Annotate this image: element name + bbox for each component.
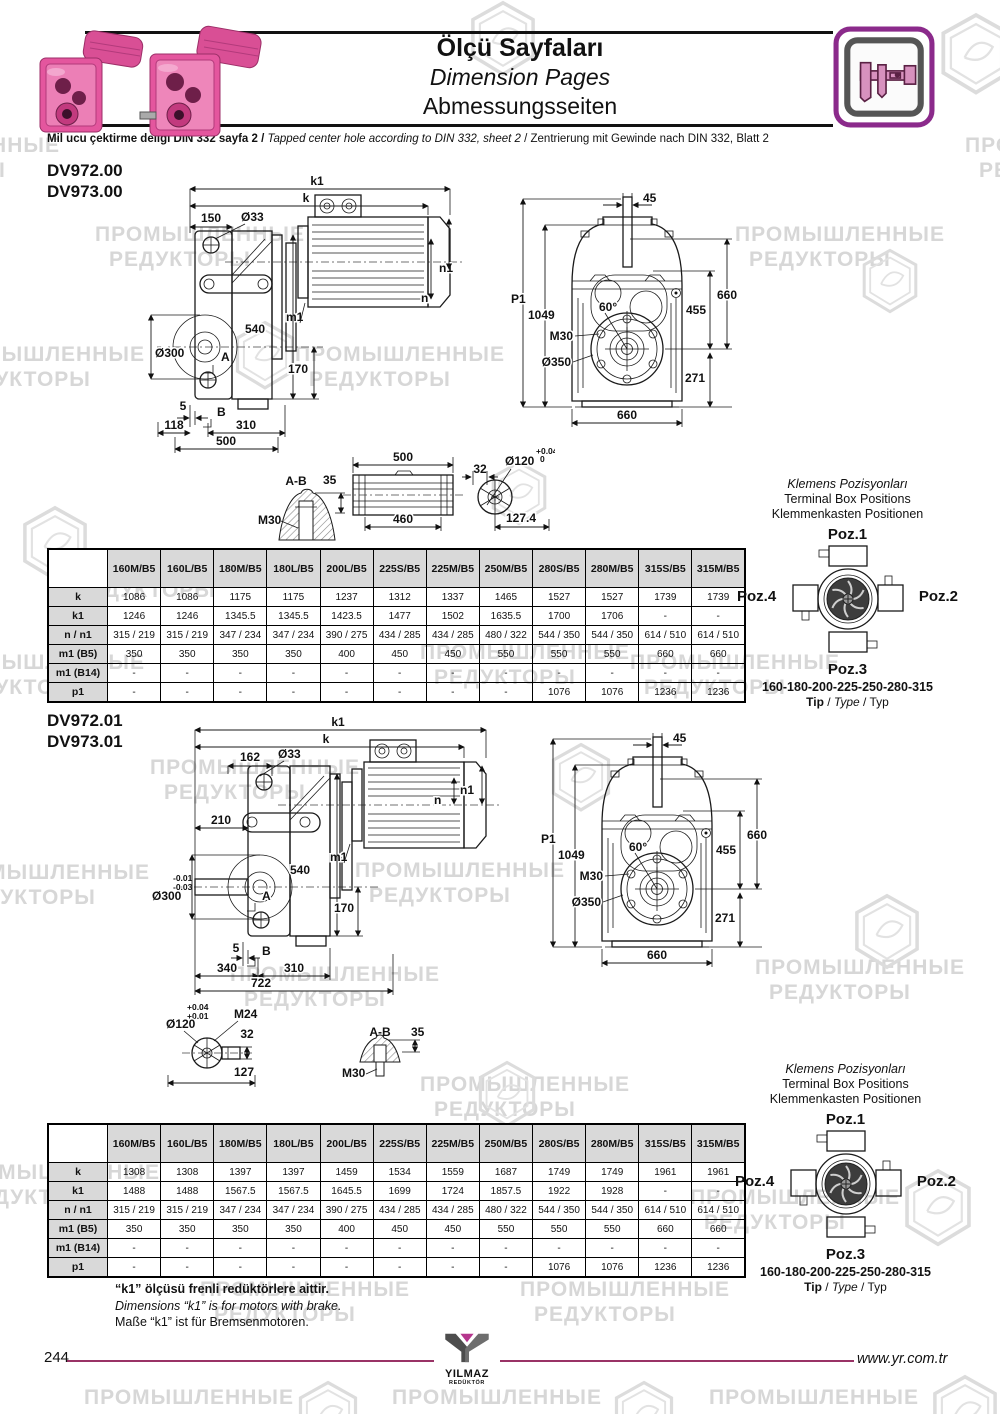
row-label: k1 bbox=[48, 1182, 108, 1201]
table-cell: 1857.5 bbox=[479, 1182, 532, 1201]
table-cell: - bbox=[320, 1239, 373, 1258]
watermark-hexagon bbox=[296, 1380, 360, 1414]
table-cell: 480 / 322 bbox=[479, 626, 532, 645]
dim-label: 170 bbox=[334, 901, 354, 915]
dim-label: k1 bbox=[310, 175, 324, 188]
column-header: 225M/B5 bbox=[426, 1124, 479, 1163]
table-cell: 1236 bbox=[639, 683, 692, 703]
terminal-box-block-1: Klemens Pozisyonları Terminal Box Positi… bbox=[735, 477, 960, 709]
dim-label: 455 bbox=[716, 843, 736, 857]
dim-label: n1 bbox=[439, 261, 453, 275]
table-cell: - bbox=[161, 683, 214, 703]
column-header: 280M/B5 bbox=[586, 549, 639, 588]
dim-label: 150 bbox=[201, 211, 221, 225]
dim-label: Ø350 bbox=[542, 355, 572, 369]
table-cell: - bbox=[479, 683, 532, 703]
column-header: 280S/B5 bbox=[533, 549, 586, 588]
poz3-label: Poz.3 bbox=[733, 1246, 958, 1263]
tip-label: Tip bbox=[806, 695, 824, 709]
table-cell: 350 bbox=[161, 1220, 214, 1239]
table-cell: 660 bbox=[639, 645, 692, 664]
type-label: Type bbox=[832, 1280, 858, 1294]
table-cell: - bbox=[161, 1258, 214, 1278]
table-cell: 1459 bbox=[320, 1163, 373, 1182]
table-cell: - bbox=[479, 664, 532, 683]
table-cell: 1567.5 bbox=[214, 1182, 267, 1201]
dim-label: n bbox=[434, 793, 441, 807]
table-cell: - bbox=[639, 1182, 692, 1201]
row-label: k1 bbox=[48, 607, 108, 626]
table-cell: - bbox=[373, 683, 426, 703]
column-header: 280S/B5 bbox=[533, 1124, 586, 1163]
table-corner-cell bbox=[48, 549, 108, 588]
table-cell: 350 bbox=[214, 645, 267, 664]
column-header: 315S/B5 bbox=[639, 1124, 692, 1163]
dim-label: B bbox=[217, 405, 226, 419]
table-cell: 550 bbox=[479, 1220, 532, 1239]
typ-label: Typ bbox=[868, 1280, 887, 1294]
frame-sizes: 160-180-200-225-250-280-315 bbox=[733, 1265, 958, 1279]
dim-label: 5 bbox=[180, 399, 187, 413]
dim-label: 340 bbox=[217, 961, 237, 975]
dim-label: 660 bbox=[717, 288, 737, 302]
table-cell: 315 / 219 bbox=[108, 1201, 161, 1220]
din-note-de: / Zentrierung mit Gewinde nach DIN 332, … bbox=[524, 133, 769, 145]
model-number: DV972.00 bbox=[47, 160, 123, 181]
dim-label: A bbox=[221, 350, 230, 364]
table-cell: 1397 bbox=[267, 1163, 320, 1182]
table-cell: 315 / 219 bbox=[161, 1201, 214, 1220]
dim-label: A bbox=[262, 889, 271, 903]
yilmaz-logo: YILMAZ REDÜKTÖR bbox=[434, 1330, 500, 1387]
table-cell: 350 bbox=[267, 1220, 320, 1239]
poz-diagram-wrap: Poz.1 Poz.4 Poz.2 Poz.3 bbox=[735, 526, 960, 678]
footnote-en: Dimensions “k1” is for motors with brake… bbox=[115, 1298, 341, 1315]
dim-label: 455 bbox=[686, 303, 706, 317]
footnote-de: Maße “k1” ist für Bremsenmotoren. bbox=[115, 1314, 341, 1331]
dim-label: M30 bbox=[342, 1066, 366, 1080]
table-row: k130813081397139714591534155916871749174… bbox=[48, 1163, 745, 1182]
table-cell: 1076 bbox=[586, 1258, 639, 1278]
table-row: k1124612461345.51345.51423.5147715021635… bbox=[48, 607, 745, 626]
table-cell: 1687 bbox=[479, 1163, 532, 1182]
dim-label: Ø300 bbox=[152, 889, 182, 903]
table-cell: - bbox=[373, 1258, 426, 1278]
table-cell: 1477 bbox=[373, 607, 426, 626]
table-cell: - bbox=[108, 1239, 161, 1258]
column-header: 160L/B5 bbox=[161, 1124, 214, 1163]
table-cell: 1246 bbox=[161, 607, 214, 626]
table-cell: - bbox=[373, 1239, 426, 1258]
table-cell: - bbox=[161, 1239, 214, 1258]
table-cell: 1236 bbox=[639, 1258, 692, 1278]
table-row: m1 (B5)350350350350400450450550550550660… bbox=[48, 1220, 745, 1239]
table-cell: 1922 bbox=[533, 1182, 586, 1201]
table-cell: - bbox=[426, 1239, 479, 1258]
row-label: k bbox=[48, 588, 108, 607]
typ-label: Typ bbox=[870, 695, 889, 709]
table-cell: 1706 bbox=[586, 607, 639, 626]
drawing-side-view-1: k1 k 150 Ø33 n1 n m1 540 Ø300 170 A bbox=[105, 175, 480, 460]
table-cell: 1175 bbox=[214, 588, 267, 607]
dim-label: 660 bbox=[617, 408, 637, 422]
table-cell: 347 / 234 bbox=[214, 1201, 267, 1220]
table-cell: 1337 bbox=[426, 588, 479, 607]
dim-label: m1 bbox=[330, 850, 348, 864]
table-cell: - bbox=[639, 664, 692, 683]
section2-models: DV972.01 DV973.01 bbox=[47, 710, 123, 752]
dim-label: 660 bbox=[647, 948, 667, 962]
dim-label: m1 bbox=[286, 310, 304, 324]
footnotes: “k1” ölçüsü frenli redüktörlere aittir. … bbox=[115, 1281, 341, 1331]
column-header: 160M/B5 bbox=[108, 1124, 161, 1163]
drawing-side-view-2: k1 k 162 Ø33 210 n1 n m1 540 -0.01 -0.03… bbox=[148, 714, 543, 1009]
table-cell: - bbox=[108, 664, 161, 683]
gearmotor-left bbox=[40, 30, 144, 132]
dim-label: Ø33 bbox=[241, 210, 264, 224]
table-cell: - bbox=[267, 1239, 320, 1258]
table-cell: 1527 bbox=[586, 588, 639, 607]
table-cell: - bbox=[639, 1239, 692, 1258]
tip-label: Tip bbox=[804, 1280, 822, 1294]
table-cell: - bbox=[320, 1258, 373, 1278]
table-cell: 1739 bbox=[639, 588, 692, 607]
table-cell: 350 bbox=[214, 1220, 267, 1239]
dimension-table: 160M/B5160L/B5180M/B5180L/B5200L/B5225S/… bbox=[47, 548, 746, 703]
table-row: p1--------1076107612361236 bbox=[48, 683, 745, 703]
column-header: 250M/B5 bbox=[479, 549, 532, 588]
table-cell: 434 / 285 bbox=[373, 1201, 426, 1220]
section-label: A-B bbox=[285, 474, 307, 488]
row-label: m1 (B14) bbox=[48, 1239, 108, 1258]
dim-label: 540 bbox=[245, 322, 265, 336]
table-cell: 1749 bbox=[586, 1163, 639, 1182]
row-label: p1 bbox=[48, 683, 108, 703]
poz4-label: Poz.4 bbox=[735, 1173, 774, 1190]
drawing-front-view-1: 45 P1 1049 60° M30 Ø350 660 455 271 660 bbox=[505, 183, 765, 435]
logo-text-bottom: REDÜKTÖR bbox=[434, 1380, 500, 1387]
dim-label: n bbox=[421, 291, 428, 305]
dim-label: 540 bbox=[290, 863, 310, 877]
dim-label: M30 bbox=[550, 329, 574, 343]
table-cell: 450 bbox=[426, 1220, 479, 1239]
model-number: DV972.01 bbox=[47, 710, 123, 731]
row-label: m1 (B5) bbox=[48, 1220, 108, 1239]
table-cell: 1423.5 bbox=[320, 607, 373, 626]
column-header: 180M/B5 bbox=[214, 549, 267, 588]
dim-label: 118 bbox=[164, 418, 184, 432]
table-row: k1148814881567.51567.51645.5169917241857… bbox=[48, 1182, 745, 1201]
column-header: 180M/B5 bbox=[214, 1124, 267, 1163]
dim-label: M24 bbox=[234, 1007, 258, 1021]
dimension-table-2: 160M/B5160L/B5180M/B5180L/B5200L/B5225S/… bbox=[47, 1123, 746, 1278]
dim-label: 1049 bbox=[558, 848, 585, 862]
column-header: 225S/B5 bbox=[373, 549, 426, 588]
column-header: 315S/B5 bbox=[639, 549, 692, 588]
poz4-label: Poz.4 bbox=[737, 588, 776, 605]
watermark-hexagon bbox=[930, 1374, 1000, 1414]
motor-fan-diagram bbox=[788, 540, 908, 662]
table-cell: 347 / 234 bbox=[267, 626, 320, 645]
dim-label: 35 bbox=[323, 473, 337, 487]
table-cell: - bbox=[108, 1258, 161, 1278]
table-cell: 1397 bbox=[214, 1163, 267, 1182]
table-cell: 390 / 275 bbox=[320, 626, 373, 645]
watermark-text: ПРОМЫШЛЕННЫЕРЕДУКТОРЫ bbox=[392, 1385, 602, 1414]
poz2-label: Poz.2 bbox=[919, 588, 958, 605]
table-cell: - bbox=[639, 607, 692, 626]
dim-label: 127 bbox=[234, 1065, 254, 1079]
table-cell: 390 / 275 bbox=[320, 1201, 373, 1220]
table-cell: 544 / 350 bbox=[586, 1201, 639, 1220]
table-row: k108610861175117512371312133714651527152… bbox=[48, 588, 745, 607]
table-cell: 450 bbox=[373, 1220, 426, 1239]
tolerance-label: +0.04 bbox=[536, 446, 555, 456]
table-cell: - bbox=[214, 1239, 267, 1258]
dim-label: 660 bbox=[747, 828, 767, 842]
watermark-hexagon bbox=[612, 1380, 676, 1414]
table-cell: 350 bbox=[267, 645, 320, 664]
watermark-text: ПРОМЫШЛЕННЫЕРЕДУКТОРЫ bbox=[0, 860, 150, 910]
dim-label: M30 bbox=[580, 869, 604, 883]
row-label: p1 bbox=[48, 1258, 108, 1278]
tolerance-label: 0 bbox=[540, 454, 545, 464]
table-cell: 434 / 285 bbox=[426, 1201, 479, 1220]
table-cell: 1237 bbox=[320, 588, 373, 607]
type-line: Tip / Type / Typ bbox=[733, 1280, 958, 1294]
dim-label: k bbox=[323, 732, 330, 746]
table-cell: 315 / 219 bbox=[108, 626, 161, 645]
type-label: Type bbox=[834, 695, 860, 709]
table-cell: 544 / 350 bbox=[586, 626, 639, 645]
dim-label: Ø120 bbox=[505, 454, 535, 468]
table-cell: - bbox=[320, 683, 373, 703]
table-cell: 1502 bbox=[426, 607, 479, 626]
dim-label: 210 bbox=[211, 813, 231, 827]
table-cell: 1308 bbox=[108, 1163, 161, 1182]
table-cell: 1488 bbox=[161, 1182, 214, 1201]
table-cell: 1567.5 bbox=[267, 1182, 320, 1201]
catalog-page: ПРОМЫШЛЕННЫЕРЕДУКТОРЫПРОМЫШЛЕННЫЕРЕДУКТО… bbox=[0, 0, 1000, 1414]
dim-label: n1 bbox=[460, 783, 474, 797]
dim-label: 1049 bbox=[528, 308, 555, 322]
table-cell: 1534 bbox=[373, 1163, 426, 1182]
dim-label: B bbox=[262, 944, 271, 958]
table-cell: 350 bbox=[108, 1220, 161, 1239]
dim-label: 35 bbox=[411, 1025, 425, 1039]
watermark-text: ПРОМЫШЛЕННЫЕРЕДУКТОРЫ bbox=[84, 1385, 294, 1414]
table-row: m1 (B14)------------ bbox=[48, 1239, 745, 1258]
table-cell: - bbox=[108, 683, 161, 703]
footnote-tr: “k1” ölçüsü frenli redüktörlere aittir. bbox=[115, 1281, 341, 1298]
dim-label: Ø350 bbox=[572, 895, 602, 909]
model-number: DV973.00 bbox=[47, 181, 123, 202]
table-cell: - bbox=[267, 683, 320, 703]
caliper-icon bbox=[833, 26, 935, 128]
table-cell: - bbox=[533, 1239, 586, 1258]
page-title: Ölçü Sayfaları Dimension Pages Abmessung… bbox=[300, 33, 740, 121]
table-cell: 347 / 234 bbox=[267, 1201, 320, 1220]
din-note-en: Tapped center hole according to DIN 332,… bbox=[268, 133, 521, 145]
dim-label: 310 bbox=[236, 418, 256, 432]
terminal-title-tr: Klemens Pozisyonları bbox=[733, 1062, 958, 1077]
table-cell: 550 bbox=[586, 645, 639, 664]
poz2-label: Poz.2 bbox=[917, 1173, 956, 1190]
table-cell: 1635.5 bbox=[479, 607, 532, 626]
column-header: 280M/B5 bbox=[586, 1124, 639, 1163]
dim-label: 60° bbox=[599, 300, 617, 314]
table-cell: - bbox=[320, 664, 373, 683]
terminal-title-de: Klemmenkasten Positionen bbox=[733, 1092, 958, 1107]
table-cell: 1345.5 bbox=[214, 607, 267, 626]
table-cell: - bbox=[426, 664, 479, 683]
table-cell: 1699 bbox=[373, 1182, 426, 1201]
row-label: m1 (B5) bbox=[48, 645, 108, 664]
dim-label: Ø33 bbox=[278, 747, 301, 761]
product-photo-gearmotors bbox=[22, 22, 277, 140]
table-row: p1--------1076107612361236 bbox=[48, 1258, 745, 1278]
table-cell: 1076 bbox=[533, 1258, 586, 1278]
table-cell: 1645.5 bbox=[320, 1182, 373, 1201]
dim-label: 5 bbox=[233, 941, 240, 955]
column-header: 180L/B5 bbox=[267, 1124, 320, 1163]
column-header: 160M/B5 bbox=[108, 549, 161, 588]
dim-label: 60° bbox=[629, 840, 647, 854]
column-header: 225S/B5 bbox=[373, 1124, 426, 1163]
dim-label: 500 bbox=[393, 450, 413, 464]
table-cell: - bbox=[267, 1258, 320, 1278]
column-header: 200L/B5 bbox=[320, 1124, 373, 1163]
table-cell: 614 / 510 bbox=[639, 626, 692, 645]
dim-label: 45 bbox=[673, 731, 687, 745]
dim-label: 127.4 bbox=[506, 511, 536, 525]
table-cell: 544 / 350 bbox=[533, 626, 586, 645]
frame-sizes: 160-180-200-225-250-280-315 bbox=[735, 680, 960, 694]
table-cell: 1246 bbox=[108, 607, 161, 626]
watermark-text: ПРОМЫШЛЕННЫЕРЕДУКТОРЫ bbox=[965, 133, 1000, 183]
table-cell: 1076 bbox=[586, 683, 639, 703]
dim-label: Ø120 bbox=[166, 1017, 196, 1031]
terminal-title-en: Terminal Box Positions bbox=[733, 1077, 958, 1092]
table-cell: 347 / 234 bbox=[214, 626, 267, 645]
table-cell: 450 bbox=[426, 645, 479, 664]
table-cell: 1076 bbox=[533, 683, 586, 703]
table-cell: - bbox=[586, 664, 639, 683]
terminal-box-block-2: Klemens Pozisyonları Terminal Box Positi… bbox=[733, 1062, 958, 1294]
logo-text-top: YILMAZ bbox=[434, 1369, 500, 1380]
website-url[interactable]: www.yr.com.tr bbox=[857, 1351, 948, 1367]
table-cell: 1749 bbox=[533, 1163, 586, 1182]
table-cell: 1465 bbox=[479, 588, 532, 607]
table-cell: 1928 bbox=[586, 1182, 639, 1201]
dimension-table: 160M/B5160L/B5180M/B5180L/B5200L/B5225S/… bbox=[47, 1123, 746, 1278]
table-cell: - bbox=[479, 1258, 532, 1278]
table-cell: - bbox=[373, 664, 426, 683]
table-cell: - bbox=[426, 683, 479, 703]
terminal-title-en: Terminal Box Positions bbox=[735, 492, 960, 507]
table-cell: 1086 bbox=[161, 588, 214, 607]
table-cell: 1961 bbox=[639, 1163, 692, 1182]
dim-label: k1 bbox=[331, 715, 345, 729]
column-header: 250M/B5 bbox=[479, 1124, 532, 1163]
dim-label: M30 bbox=[258, 513, 282, 527]
table-cell: 1527 bbox=[533, 588, 586, 607]
table-cell: 350 bbox=[108, 645, 161, 664]
table-cell: 480 / 322 bbox=[479, 1201, 532, 1220]
table-cell: 1724 bbox=[426, 1182, 479, 1201]
dim-label: P1 bbox=[511, 292, 526, 306]
page-number: 244 bbox=[44, 1349, 69, 1366]
dim-label: 722 bbox=[251, 976, 271, 990]
dim-label: 500 bbox=[216, 434, 236, 448]
row-label: n / n1 bbox=[48, 1201, 108, 1220]
dim-label: 271 bbox=[715, 911, 735, 925]
watermark-hexagon bbox=[860, 248, 920, 319]
table-cell: 1175 bbox=[267, 588, 320, 607]
table-cell: - bbox=[161, 664, 214, 683]
dim-label: Ø300 bbox=[155, 346, 185, 360]
poz3-label: Poz.3 bbox=[735, 661, 960, 678]
table-corner-cell bbox=[48, 1124, 108, 1163]
table-cell: - bbox=[214, 1258, 267, 1278]
column-header: 180L/B5 bbox=[267, 549, 320, 588]
table-row: m1 (B14)------------ bbox=[48, 664, 745, 683]
table-cell: - bbox=[426, 1258, 479, 1278]
model-number: DV973.01 bbox=[47, 731, 123, 752]
table-cell: 434 / 285 bbox=[426, 626, 479, 645]
table-row: n / n1315 / 219315 / 219347 / 234347 / 2… bbox=[48, 626, 745, 645]
dim-label: k bbox=[303, 191, 310, 205]
table-cell: 350 bbox=[161, 645, 214, 664]
table-cell: 1488 bbox=[108, 1182, 161, 1201]
table-row: m1 (B5)350350350350400450450550550550660… bbox=[48, 645, 745, 664]
terminal-title-de: Klemmenkasten Positionen bbox=[735, 507, 960, 522]
column-header: 200L/B5 bbox=[320, 549, 373, 588]
table-cell: - bbox=[533, 664, 586, 683]
watermark-text: ПРОМЫШЛЕННЫЕРЕДУКТОРЫ bbox=[520, 1277, 730, 1327]
dim-label: 32 bbox=[473, 462, 487, 476]
motor-fan-diagram bbox=[786, 1125, 906, 1247]
watermark-hexagon bbox=[852, 893, 922, 975]
gearmotor-right bbox=[140, 25, 262, 136]
dimension-table-1: 160M/B5160L/B5180M/B5180L/B5200L/B5225S/… bbox=[47, 548, 746, 703]
page-title-en: Dimension Pages bbox=[300, 63, 740, 92]
column-header: 160L/B5 bbox=[161, 549, 214, 588]
table-cell: 400 bbox=[320, 1220, 373, 1239]
table-cell: 1345.5 bbox=[267, 607, 320, 626]
dim-label: 45 bbox=[643, 191, 657, 205]
page-title-de: Abmessungsseiten bbox=[300, 92, 740, 121]
table-cell: 550 bbox=[533, 1220, 586, 1239]
table-cell: 434 / 285 bbox=[373, 626, 426, 645]
row-label: m1 (B14) bbox=[48, 664, 108, 683]
poz-diagram-wrap: Poz.1 Poz.4 Poz.2 Poz.3 bbox=[733, 1111, 958, 1263]
watermark-hexagon bbox=[938, 12, 1000, 101]
table-cell: 550 bbox=[586, 1220, 639, 1239]
table-cell: 450 bbox=[373, 645, 426, 664]
row-label: k bbox=[48, 1163, 108, 1182]
table-cell: 660 bbox=[639, 1220, 692, 1239]
table-cell: - bbox=[214, 683, 267, 703]
table-cell: 550 bbox=[479, 645, 532, 664]
page-title-tr: Ölçü Sayfaları bbox=[300, 33, 740, 63]
type-line: Tip / Type / Typ bbox=[735, 695, 960, 709]
drawing-front-view-2: 45 P1 1049 60° M30 Ø350 660 455 271 660 bbox=[535, 723, 795, 975]
row-label: n / n1 bbox=[48, 626, 108, 645]
table-cell: 550 bbox=[533, 645, 586, 664]
watermark-text: ПРОМЫШЛЕННЫЕРЕДУКТОРЫ bbox=[709, 1385, 919, 1414]
table-cell: 1700 bbox=[533, 607, 586, 626]
